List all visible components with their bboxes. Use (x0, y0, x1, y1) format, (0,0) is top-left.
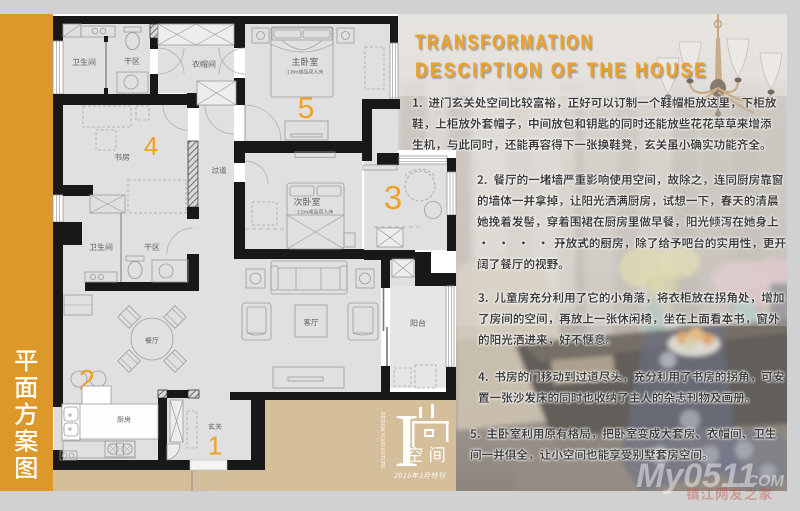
svg-text:5: 5 (298, 92, 315, 125)
svg-text:TRANSFORMATION: TRANSFORMATION (415, 30, 594, 54)
svg-text:4: 4 (144, 133, 158, 161)
svg-text:.COM: .COM (742, 473, 784, 490)
svg-text:DESCIPTION OF THE HOUSE: DESCIPTION OF THE HOUSE (415, 58, 708, 82)
svg-text:I: I (394, 399, 419, 483)
svg-text:DESIGN YOUR FUTURE: DESIGN YOUR FUTURE (379, 412, 385, 469)
svg-text:3: 3 (384, 179, 402, 216)
svg-text:1: 1 (208, 433, 222, 461)
